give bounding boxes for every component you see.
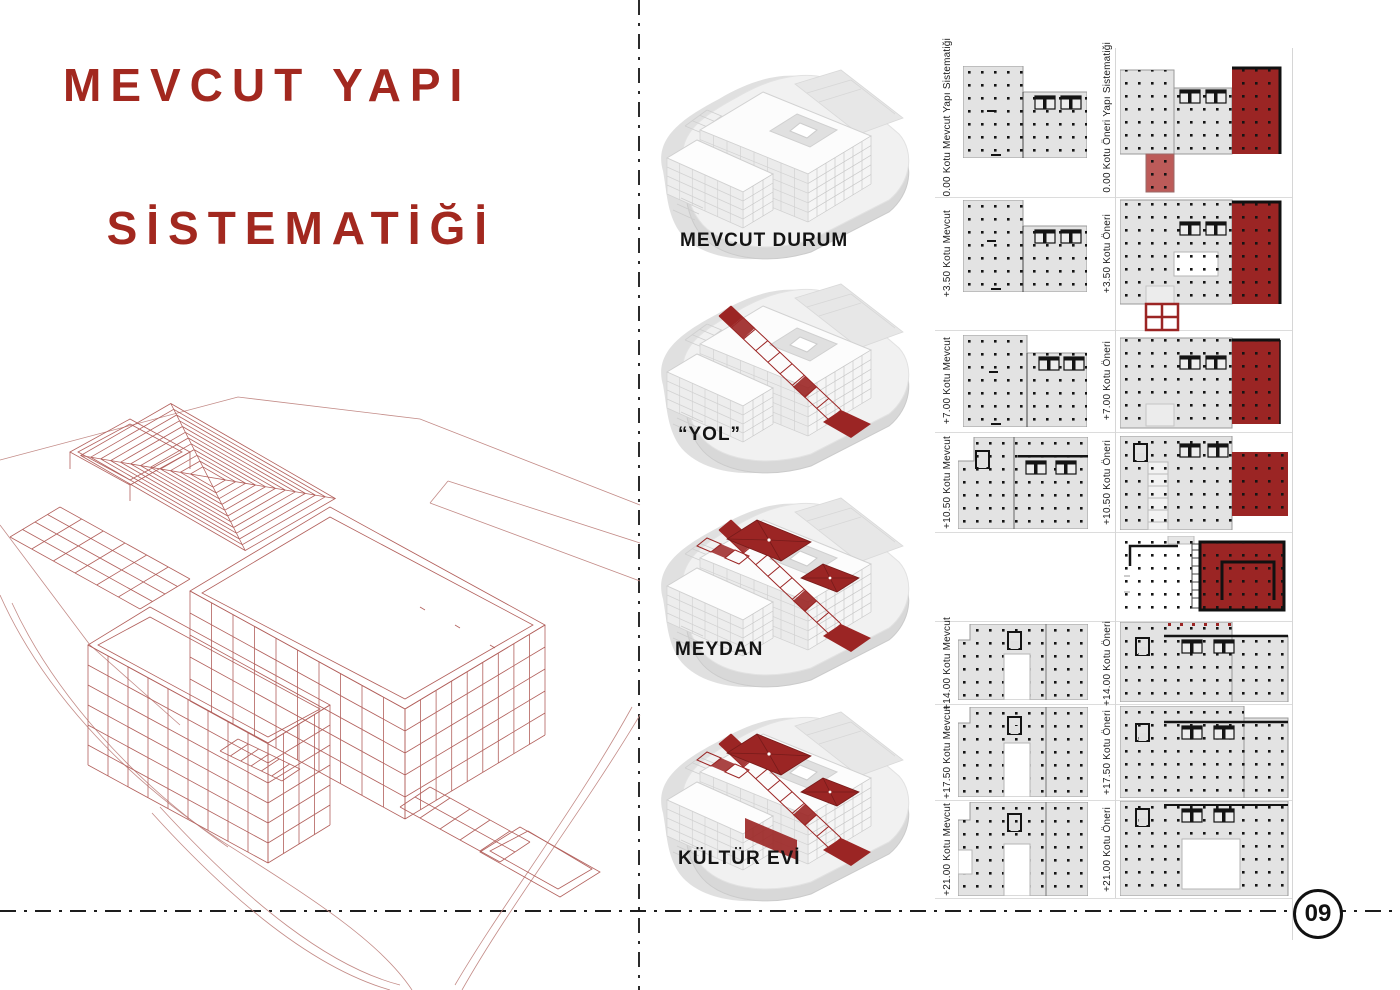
plan-oneri-2100: [1120, 801, 1292, 896]
title-line-2: SİSTEMATİĞİ: [107, 202, 497, 254]
axon-figure-kultur-evi: KÜLTÜR EVİ: [645, 690, 945, 904]
plan-oneri-1050: [1120, 436, 1292, 530]
plan-oneri-000: [1120, 64, 1292, 196]
label-oneri-1750: +17.50 Kotu Öneri: [1100, 707, 1115, 797]
plan-mevcut-350: [963, 200, 1087, 292]
label-oneri-1050: +10.50 Kotu Öneri: [1100, 434, 1115, 530]
plan-mevcut-1400: [958, 624, 1088, 700]
column-separator: [1115, 48, 1116, 898]
plan-oneri-roof: [1120, 536, 1292, 618]
label-oneri-700: +7.00 Kotu Öneri: [1100, 332, 1115, 430]
axon-figure-mevcut-durum: MEVCUT DURUM: [645, 48, 945, 262]
axon-label-kultur-evi: KÜLTÜR EVİ: [678, 848, 801, 870]
portfolio-page: MEVCUT YAPI SİSTEMATİĞİ: [0, 0, 1400, 990]
plan-mevcut-700: [963, 335, 1087, 427]
axon-label-yol: “YOL”: [678, 424, 741, 446]
title-line-1: MEVCUT YAPI: [63, 59, 471, 111]
plan-mevcut-2100: [958, 802, 1088, 896]
label-mevcut-1050: +10.50 Kotu Mevcut: [940, 434, 955, 530]
label-mevcut-2100: +21.00 Kotu Mevcut: [940, 802, 955, 896]
row-separator: [935, 898, 1292, 899]
label-mevcut-1400: +14.00 Kotu Mevcut: [940, 624, 955, 702]
label-mevcut-350: +3.50 Kotu Mevcut: [940, 198, 955, 310]
label-mevcut-000: 0.00 Kotu Mevcut Yapı Sistematiği: [940, 62, 955, 172]
label-oneri-350: +3.50 Kotu Öneri: [1100, 198, 1115, 310]
wireframe-axonometric-drawing: [0, 385, 640, 990]
axon-label-meydan: MEYDAN: [675, 639, 763, 661]
building-wireframe: [10, 404, 600, 898]
label-oneri-1400: +14.00 Kotu Öneri: [1100, 624, 1115, 702]
row-separator: [935, 704, 1292, 705]
plan-oneri-1400: [1120, 622, 1292, 702]
plan-mevcut-000: [963, 66, 1087, 158]
plan-mevcut-1750: [958, 707, 1088, 797]
column-separator: [1292, 48, 1293, 940]
label-oneri-2100: +21.00 Kotu Öneri: [1100, 802, 1115, 896]
plan-mevcut-1050: [958, 437, 1088, 529]
plan-oneri-700: [1120, 334, 1292, 432]
label-mevcut-1750: +17.50 Kotu Mevcut: [940, 707, 955, 797]
axon-figure-meydan: MEYDAN: [645, 476, 945, 690]
page-title: MEVCUT YAPI SİSTEMATİĞİ: [63, 50, 496, 264]
axon-figure-yol: “YOL”: [645, 262, 945, 476]
site-terrain-lines: [0, 397, 640, 990]
page-number: 09: [1305, 900, 1332, 928]
axon-label-mevcut-durum: MEVCUT DURUM: [680, 230, 848, 252]
row-separator: [935, 432, 1292, 433]
plan-oneri-350: [1120, 198, 1292, 332]
plan-oneri-1750: [1120, 706, 1292, 798]
row-separator: [935, 532, 1292, 533]
label-mevcut-700: +7.00 Kotu Mevcut: [940, 332, 955, 430]
page-number-badge: 09: [1293, 889, 1343, 939]
label-oneri-000: 0.00 Kotu Öneri Yapı Sistematiği: [1100, 62, 1115, 172]
